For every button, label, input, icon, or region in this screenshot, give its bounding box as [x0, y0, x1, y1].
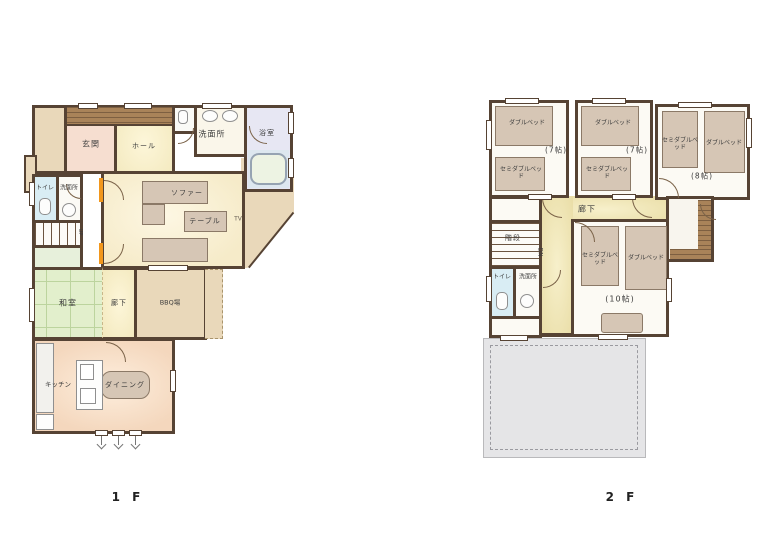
low-bench	[142, 238, 208, 262]
label-kaidan: 階段	[505, 234, 521, 242]
window	[592, 98, 626, 104]
sofa-side	[142, 204, 165, 225]
label-r3-bed2: ダブルベッド	[706, 141, 742, 148]
bedroom-sofa	[601, 313, 643, 333]
label-r2-bed2: セミダブルベッド	[585, 167, 629, 181]
kitchen-counter	[36, 343, 54, 413]
label-washitsu: 和室	[59, 298, 77, 307]
window	[170, 370, 176, 392]
window	[678, 102, 712, 108]
window	[486, 276, 492, 302]
window	[528, 194, 552, 200]
label-tv: TV	[234, 217, 242, 224]
label-r4-bed1: セミダブルベッド	[581, 253, 619, 267]
floor-label-2f: 2 F	[606, 490, 639, 504]
label-rouka-2f: 廊下	[578, 204, 596, 213]
window	[29, 182, 35, 206]
label-r2-bed1: ダブルベッド	[595, 121, 631, 128]
round-sink-1f	[62, 203, 76, 217]
refrigerator	[36, 414, 54, 430]
bathtub	[250, 153, 287, 185]
window	[288, 158, 294, 178]
closet-2f	[489, 196, 542, 223]
closet-column	[32, 105, 67, 174]
window	[612, 194, 636, 200]
sink-double-right	[222, 110, 238, 122]
bbq-dashed-extension	[205, 269, 223, 339]
label-r3-bed1: セミダブルベッド	[661, 138, 699, 152]
window	[666, 278, 672, 302]
arrow-down-icon	[131, 440, 141, 450]
label-kitchen: キッチン	[45, 381, 71, 388]
arrow-down-icon	[97, 440, 107, 450]
label-r1-bed1: ダブルベッド	[509, 121, 545, 128]
window	[124, 103, 152, 109]
window	[505, 98, 539, 104]
label-r4-bed2: ダブルベッド	[628, 256, 664, 263]
door-arc	[178, 128, 194, 144]
window	[500, 335, 528, 341]
label-table: テーブル	[189, 217, 221, 225]
label-toilet-1f: トイレ	[36, 186, 54, 193]
floorplan-1f: 玄関 ホール 洗面所 浴室 トイレ 洗面所 UP ソファー テーブル TV 和室…	[0, 0, 380, 537]
label-rouka-1f: 廊下	[111, 299, 127, 307]
window	[148, 265, 188, 271]
island-stove	[80, 388, 96, 404]
window	[29, 288, 35, 322]
label-senmenjo-2f: 洗面所	[519, 275, 537, 282]
island-sink	[80, 364, 94, 380]
label-r1-size: (7帖)	[545, 147, 567, 156]
roof-dashed-outline	[490, 345, 638, 450]
label-dn: DN	[536, 247, 543, 256]
door-marker-orange-2	[99, 243, 103, 264]
label-senmenjo-side: 洗面所	[60, 186, 78, 193]
window	[202, 103, 232, 109]
door-marker-orange-1	[99, 178, 103, 202]
label-r4-size: (10帖)	[605, 294, 634, 303]
label-senmenjo-top: 洗面所	[199, 129, 226, 138]
label-genkan: 玄関	[82, 139, 100, 148]
label-bbq: BBQ場	[160, 299, 181, 306]
label-dining: ダイニング	[105, 381, 145, 389]
stairs-2f	[489, 220, 542, 269]
entrance-wood-deck	[67, 107, 172, 126]
label-sofa: ソファー	[171, 189, 203, 197]
label-r2-size: (7帖)	[626, 147, 648, 156]
window	[78, 103, 98, 109]
round-sink-2f	[520, 294, 534, 308]
balcony-wood-deck-bottom	[670, 249, 711, 259]
floorplan-2f: 廊下 階段 DN トイレ 洗面所 ダブルベッド セミダブルベッド (7帖) ダブ…	[380, 0, 760, 537]
arrow-down-icon	[114, 440, 124, 450]
floorplan-page: { "colors": { "wall": "#564334", "terrac…	[0, 0, 760, 537]
label-r3-size: (8帖)	[691, 173, 713, 182]
label-toilet-2f: トイレ	[493, 275, 511, 282]
window	[486, 120, 492, 150]
floor-label-1f: 1 F	[112, 490, 145, 504]
label-up: UP	[76, 229, 82, 236]
toilet-1f-fixture	[39, 198, 51, 215]
toilet-2f-fixture	[496, 292, 508, 310]
label-r1-bed2: セミダブルベッド	[499, 167, 543, 181]
label-hall: ホール	[132, 142, 156, 150]
window	[598, 334, 628, 340]
toilet-top-fixture	[178, 110, 188, 124]
label-yokushitsu: 浴室	[259, 129, 275, 137]
sink-double-left	[202, 110, 218, 122]
window	[746, 118, 752, 148]
wall-segment	[539, 333, 575, 337]
window	[288, 112, 294, 134]
